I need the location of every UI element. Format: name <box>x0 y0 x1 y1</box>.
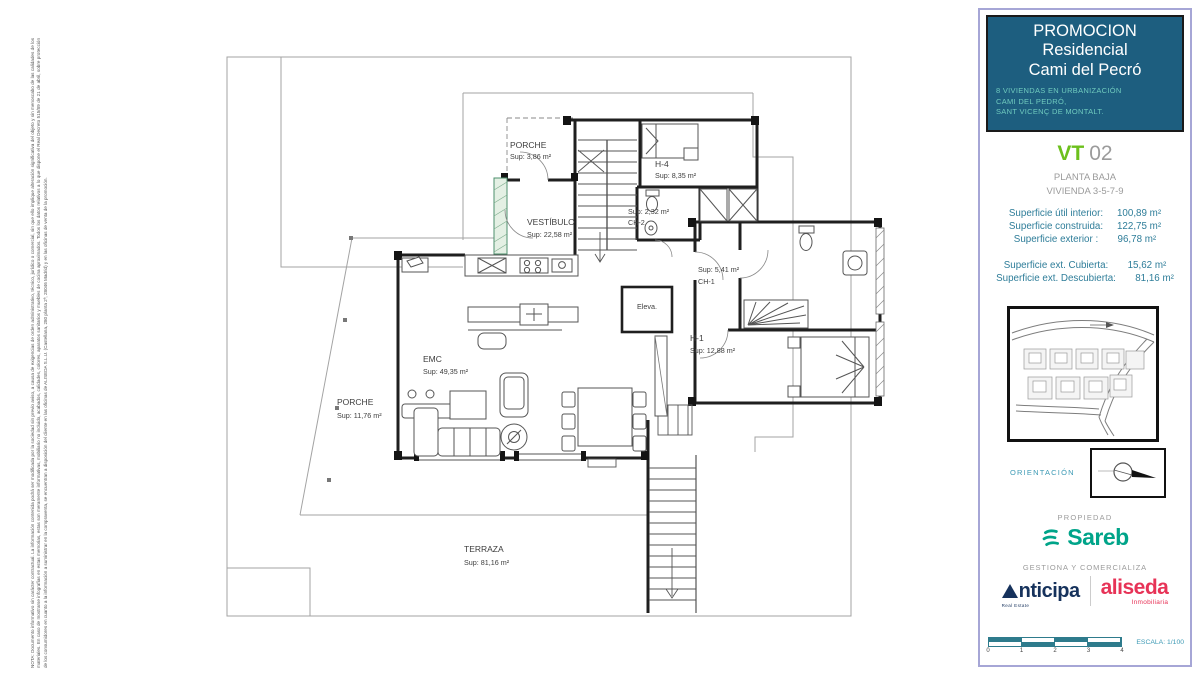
room-label-ch2: CH-2 <box>628 218 645 227</box>
room-label-h1: H-1 <box>690 333 704 343</box>
scale-ticks: 0 1 2 3 4 <box>988 648 1122 656</box>
aliseda-wordmark: aliseda <box>1101 577 1169 598</box>
scale-label: ESCALA: 1/100 <box>1136 639 1184 646</box>
promotion-title-line1: PROMOCION <box>988 22 1182 41</box>
room-label-vestibulo: VESTÍBULO <box>527 217 575 227</box>
room-sup-ch1: Sup: 5,41 m² <box>698 265 740 274</box>
room-label-elevator: Eleva. <box>637 302 657 311</box>
surface-row: Superficie exterior : 96,78 m² <box>980 233 1190 246</box>
room-sup-ch2: Sup: 2,32 m² <box>628 207 670 216</box>
promotion-title-line3: Cami del Pecró <box>988 61 1182 80</box>
room-sup-h4: Sup: 8,35 m² <box>655 171 697 180</box>
anticipa-wordmark: nticipa <box>1019 580 1080 603</box>
room-label-h4: H-4 <box>655 159 669 169</box>
compass-icon <box>1090 448 1166 498</box>
site-map-drawing <box>1010 309 1156 439</box>
scale-bar-row: 0 1 2 3 4 ESCALA: 1/100 <box>988 637 1184 656</box>
aliseda-logo: aliseda Inmobiliaria <box>1101 577 1169 606</box>
room-label-ch1: CH-1 <box>698 277 715 286</box>
anticipa-triangle-icon <box>1002 584 1018 598</box>
site-map <box>1007 306 1159 442</box>
exterior-stairs <box>649 405 696 613</box>
surface-row: Superficie útil interior: 100,89 m² <box>980 207 1190 220</box>
surface-row: Superficie construida: 122,75 m² <box>980 220 1190 233</box>
unit-code-vt: VT <box>1057 142 1084 165</box>
unit-floor-info: PLANTA BAJA VIVIENDA 3-5-7-9 <box>980 171 1190 200</box>
broker-logos: nticipa Real Estate aliseda Inmobiliaria <box>980 576 1190 606</box>
room-sup-porche-top: Sup: 3,86 m² <box>510 152 552 161</box>
boundary-markers <box>327 236 353 482</box>
scale-bar: 0 1 2 3 4 <box>988 637 1122 656</box>
promotion-header: PROMOCION Residencial Cami del Pecró 8 V… <box>986 15 1184 132</box>
unit-code: VT02 <box>980 142 1190 166</box>
room-sup-terraza: Sup: 81,16 m² <box>464 558 510 567</box>
interior-stairs <box>578 140 637 262</box>
promotion-subtitle-line3: SANT VICENÇ DE MONTALT. <box>996 107 1182 118</box>
surface-row: Superficie ext. Cubierta: 15,62 m² <box>980 259 1190 272</box>
room-sup-vestibulo: Sup: 22,58 m² <box>527 230 573 239</box>
east-window-wall <box>876 228 884 396</box>
room-label-porche-top: PORCHE <box>510 140 547 150</box>
room-label-porche-left: PORCHE <box>337 397 374 407</box>
surfaces-exterior: Superficie ext. Cubierta: 15,62 m² Super… <box>980 259 1190 285</box>
floor-label: PLANTA BAJA <box>980 171 1190 185</box>
propiedad-label: PROPIEDAD <box>980 513 1190 522</box>
room-sup-emc: Sup: 49,35 m² <box>423 367 469 376</box>
surface-row: Superficie ext. Descubierta: 81,16 m² <box>980 272 1190 285</box>
room-label-terraza: TERRAZA <box>464 544 504 554</box>
surfaces-main: Superficie útil interior: 100,89 m² Supe… <box>980 207 1190 246</box>
sareb-icon <box>1041 527 1063 549</box>
room-sup-porche-left: Sup: 11,76 m² <box>337 411 382 420</box>
promotion-title-line2: Residencial <box>988 41 1182 60</box>
room-label-emc: EMC <box>423 354 442 364</box>
unit-code-number: 02 <box>1089 142 1112 165</box>
anticipa-caption: Real Estate <box>1002 603 1030 608</box>
entry-green-wall <box>494 178 507 254</box>
logo-divider <box>1090 576 1091 606</box>
sareb-logo: Sareb <box>980 524 1190 551</box>
sareb-wordmark: Sareb <box>1067 524 1128 551</box>
room-sup-h1: Sup: 12,88 m² <box>690 346 736 355</box>
info-panel: PROMOCION Residencial Cami del Pecró 8 V… <box>978 8 1192 667</box>
plan-sheet: { "colors": { "panel_border": "#a6a6d6",… <box>0 0 1200 675</box>
gestiona-label: GESTIONA Y COMERCIALIZA <box>980 563 1190 572</box>
anticipa-logo: nticipa Real Estate <box>1002 580 1080 603</box>
promotion-subtitle-line1: 8 VIVIENDAS EN URBANIZACIÓN <box>996 86 1182 97</box>
legal-disclaimer: NOTA: Documento informativo sin carácter… <box>30 38 76 668</box>
orientation-label: ORIENTACIÓN <box>1010 468 1075 477</box>
promotion-subtitle-line2: CAMI DEL PEDRÓ, <box>996 97 1182 108</box>
homes-label: VIVIENDA 3-5-7-9 <box>980 185 1190 199</box>
aliseda-caption: Inmobiliaria <box>1131 599 1168 606</box>
